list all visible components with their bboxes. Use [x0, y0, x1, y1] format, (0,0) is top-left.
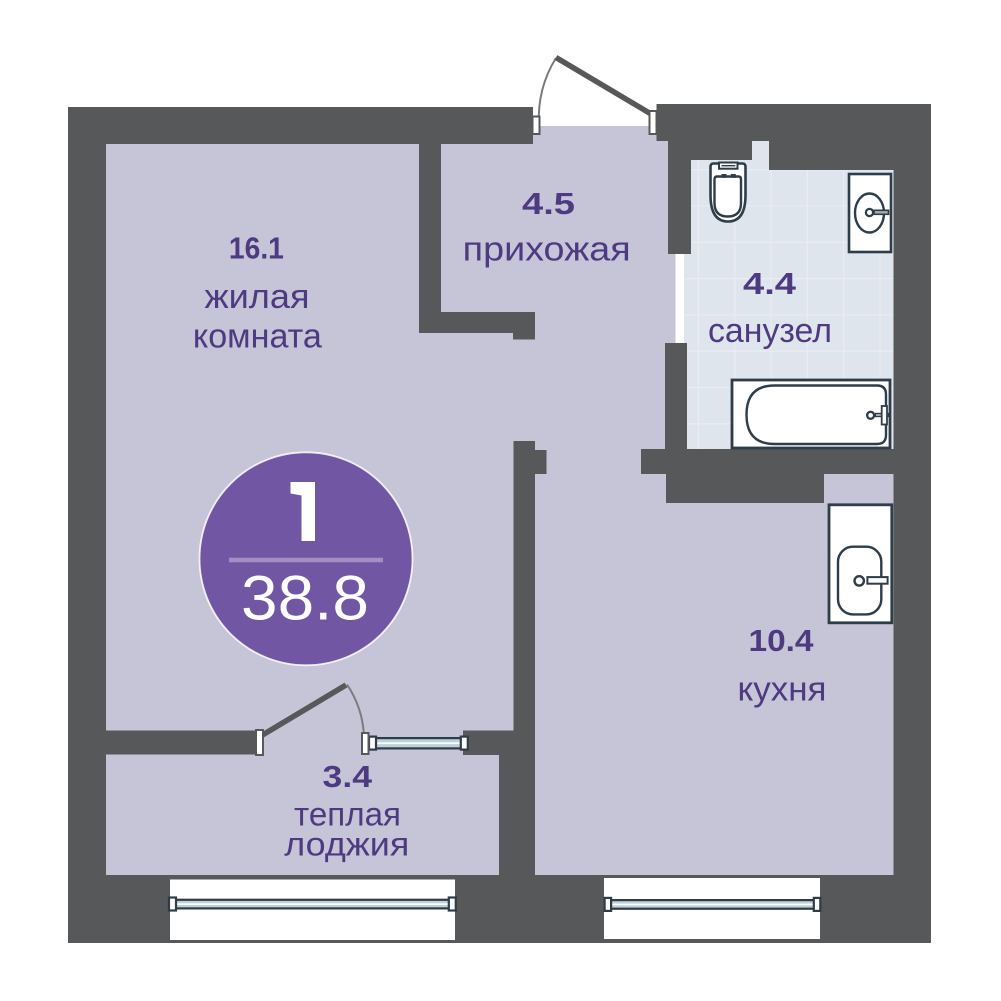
svg-text:4.5: 4.5	[522, 187, 575, 221]
svg-text:комната: комната	[193, 318, 322, 356]
svg-text:3.4: 3.4	[323, 760, 373, 794]
svg-text:кухня: кухня	[738, 671, 827, 709]
svg-text:4.4: 4.4	[743, 267, 796, 301]
svg-text:16.1: 16.1	[229, 232, 284, 266]
svg-text:10.4: 10.4	[749, 624, 814, 658]
svg-text:санузел: санузел	[708, 312, 832, 350]
svg-text:лоджия: лоджия	[284, 826, 409, 863]
svg-text:прихожая: прихожая	[463, 230, 631, 268]
svg-text:жилая: жилая	[205, 278, 310, 316]
svg-text:38.8: 38.8	[241, 564, 369, 634]
